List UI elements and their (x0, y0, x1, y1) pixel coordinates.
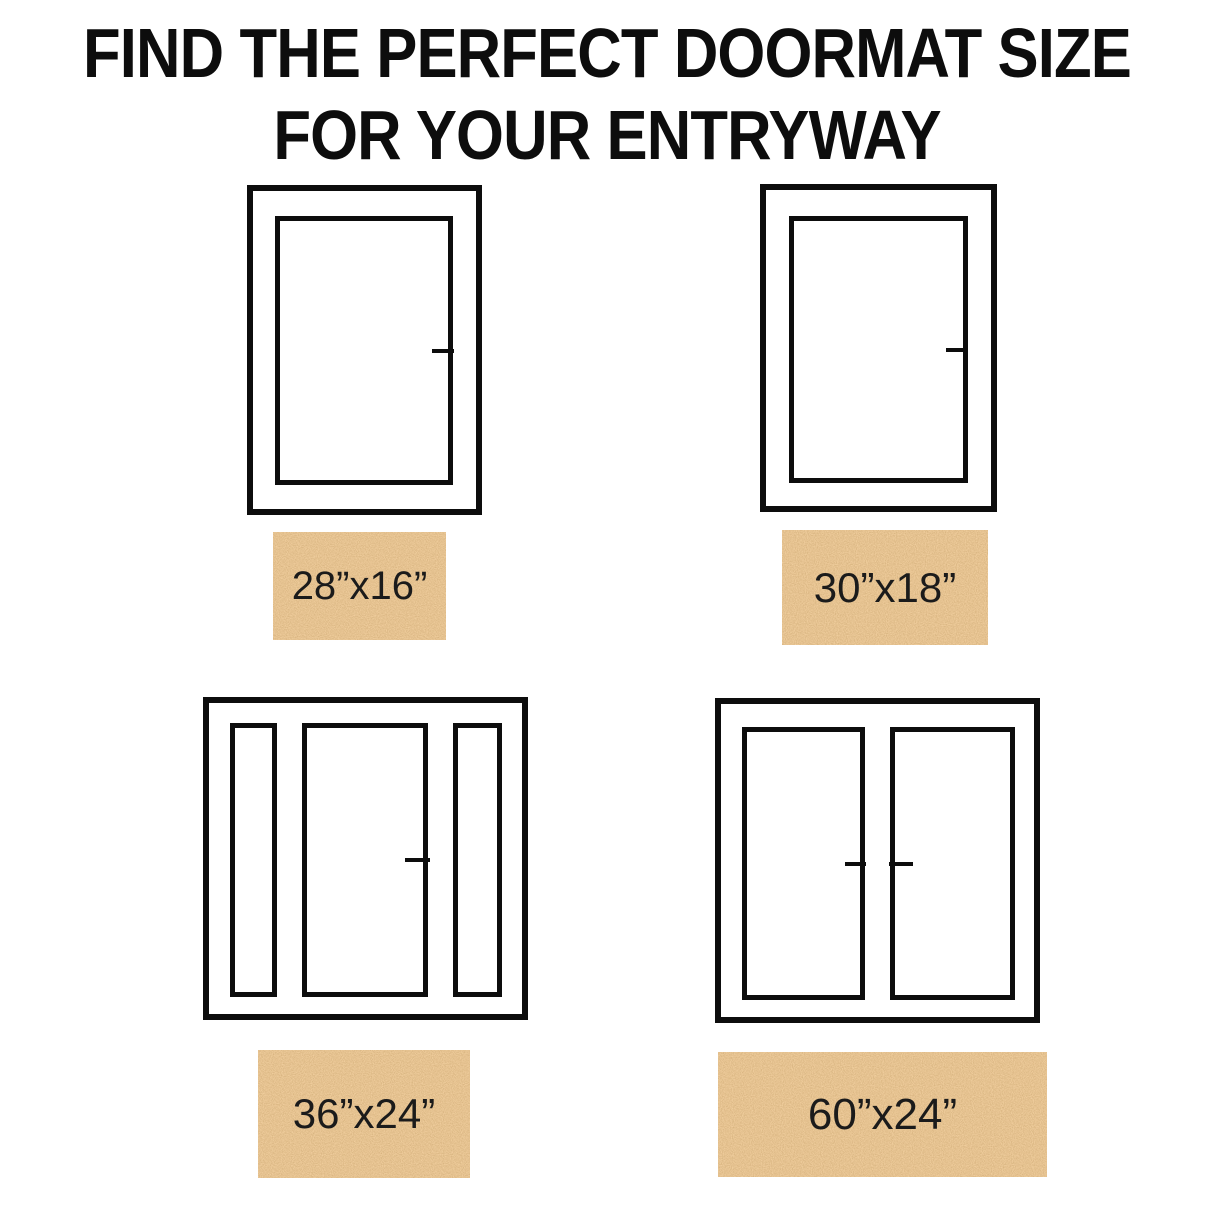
doormat-size-label: 60”x24” (718, 1052, 1047, 1177)
door-leaf (789, 216, 968, 483)
page-title: FIND THE PERFECT DOORMAT SIZE FOR YOUR E… (73, 12, 1141, 176)
door-leaf-right (890, 727, 1015, 1000)
door-handle-icon (432, 349, 454, 353)
doormat-size-label: 36”x24” (258, 1050, 470, 1178)
door-leaf-left (742, 727, 865, 1000)
door-leaf (302, 723, 428, 997)
door-handle-icon (946, 348, 968, 352)
page-title-line-1: FIND THE PERFECT DOORMAT SIZE (73, 12, 1141, 94)
sidelight-panel-right (453, 723, 502, 997)
doormat-30x18: 30”x18” (782, 530, 988, 645)
page-title-line-2: FOR YOUR ENTRYWAY (73, 94, 1141, 176)
doormat-size-infographic: FIND THE PERFECT DOORMAT SIZE FOR YOUR E… (0, 0, 1214, 1214)
door-leaf (275, 216, 453, 485)
doormat-size-label: 30”x18” (782, 530, 988, 645)
doormat-60x24: 60”x24” (718, 1052, 1047, 1177)
sidelight-door-diagram (203, 697, 528, 1020)
single-door-diagram-1 (247, 185, 482, 515)
single-door-diagram-2 (760, 184, 997, 512)
door-handle-icon (889, 862, 913, 866)
doormat-36x24: 36”x24” (258, 1050, 470, 1178)
double-door-diagram (715, 698, 1040, 1023)
door-handle-icon (405, 858, 430, 862)
doormat-size-label: 28”x16” (273, 532, 446, 640)
doormat-28x16: 28”x16” (273, 532, 446, 640)
door-handle-icon (845, 862, 866, 866)
sidelight-panel-left (230, 723, 277, 997)
